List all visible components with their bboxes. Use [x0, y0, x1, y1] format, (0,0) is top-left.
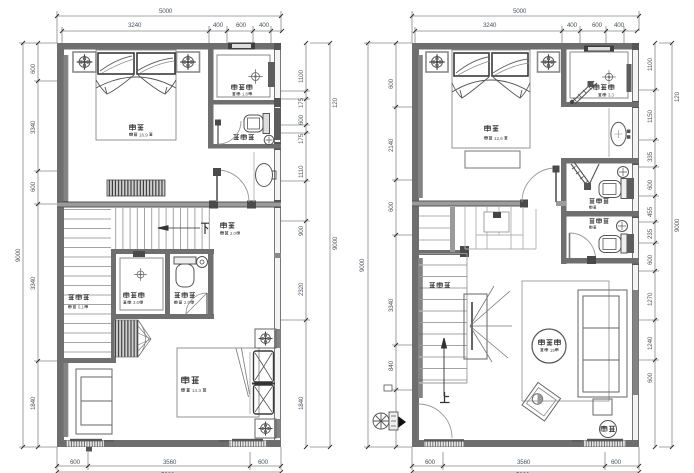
- svg-text:1270: 1270: [647, 292, 654, 306]
- svg-text:3240: 3240: [128, 22, 142, 29]
- svg-text:1240: 1240: [647, 336, 654, 350]
- svg-text:400: 400: [614, 22, 625, 29]
- svg-text:600: 600: [236, 22, 247, 29]
- svg-text:900: 900: [298, 225, 305, 236]
- svg-text:600: 600: [647, 254, 654, 265]
- svg-text:2140: 2140: [388, 138, 395, 152]
- svg-text:1100: 1100: [647, 58, 654, 71]
- svg-text:3240: 3240: [483, 22, 497, 29]
- svg-text:5000: 5000: [159, 8, 173, 15]
- svg-text:120: 120: [674, 91, 681, 102]
- svg-text:1110: 1110: [298, 165, 305, 178]
- svg-text:3340: 3340: [30, 120, 37, 134]
- svg-text:120: 120: [332, 97, 339, 108]
- svg-text:600: 600: [70, 459, 81, 466]
- svg-text:1840: 1840: [30, 396, 37, 410]
- svg-text:5000: 5000: [513, 8, 527, 15]
- svg-text:400: 400: [567, 22, 578, 29]
- svg-text:1100: 1100: [298, 70, 305, 83]
- svg-text:600: 600: [425, 459, 436, 466]
- svg-text:1840: 1840: [298, 396, 305, 410]
- svg-text:600: 600: [298, 114, 305, 125]
- svg-text:175: 175: [298, 133, 305, 144]
- svg-text:600: 600: [611, 459, 622, 466]
- svg-text:5.1: 5.1: [78, 305, 84, 310]
- svg-text:840: 840: [388, 360, 395, 371]
- svg-text:3.6: 3.6: [133, 300, 139, 305]
- svg-text:2320: 2320: [298, 282, 305, 296]
- svg-text:9000: 9000: [359, 258, 366, 272]
- svg-text:19: 19: [550, 348, 555, 353]
- svg-text:600: 600: [30, 63, 37, 74]
- svg-text:3560: 3560: [163, 459, 177, 466]
- svg-text:455: 455: [647, 206, 654, 217]
- svg-text:335: 335: [647, 151, 654, 162]
- svg-text:600: 600: [592, 22, 603, 29]
- svg-text:400: 400: [213, 22, 224, 29]
- svg-text:600: 600: [388, 78, 395, 89]
- svg-text:600: 600: [30, 181, 37, 192]
- svg-text:600: 600: [388, 201, 395, 212]
- svg-text:2.0: 2.0: [230, 231, 236, 236]
- svg-text:1150: 1150: [647, 110, 654, 123]
- svg-text:3.3: 3.3: [608, 93, 614, 98]
- svg-text:3560: 3560: [517, 459, 531, 466]
- svg-text:16.9: 16.9: [139, 133, 148, 138]
- svg-text:1.8: 1.8: [242, 92, 248, 97]
- svg-text:9000: 9000: [15, 248, 22, 262]
- svg-text:600: 600: [647, 372, 654, 383]
- svg-text:235: 235: [647, 228, 654, 239]
- svg-text:175: 175: [298, 97, 305, 108]
- svg-text:9000: 9000: [674, 218, 681, 232]
- svg-text:12.6: 12.6: [494, 136, 503, 141]
- svg-text:9000: 9000: [332, 236, 339, 250]
- svg-text:3340: 3340: [388, 298, 395, 312]
- svg-text:600: 600: [647, 179, 654, 190]
- svg-text:14.3: 14.3: [192, 388, 201, 393]
- svg-text:600: 600: [258, 459, 269, 466]
- svg-text:400: 400: [259, 22, 270, 29]
- svg-text:3340: 3340: [30, 276, 37, 290]
